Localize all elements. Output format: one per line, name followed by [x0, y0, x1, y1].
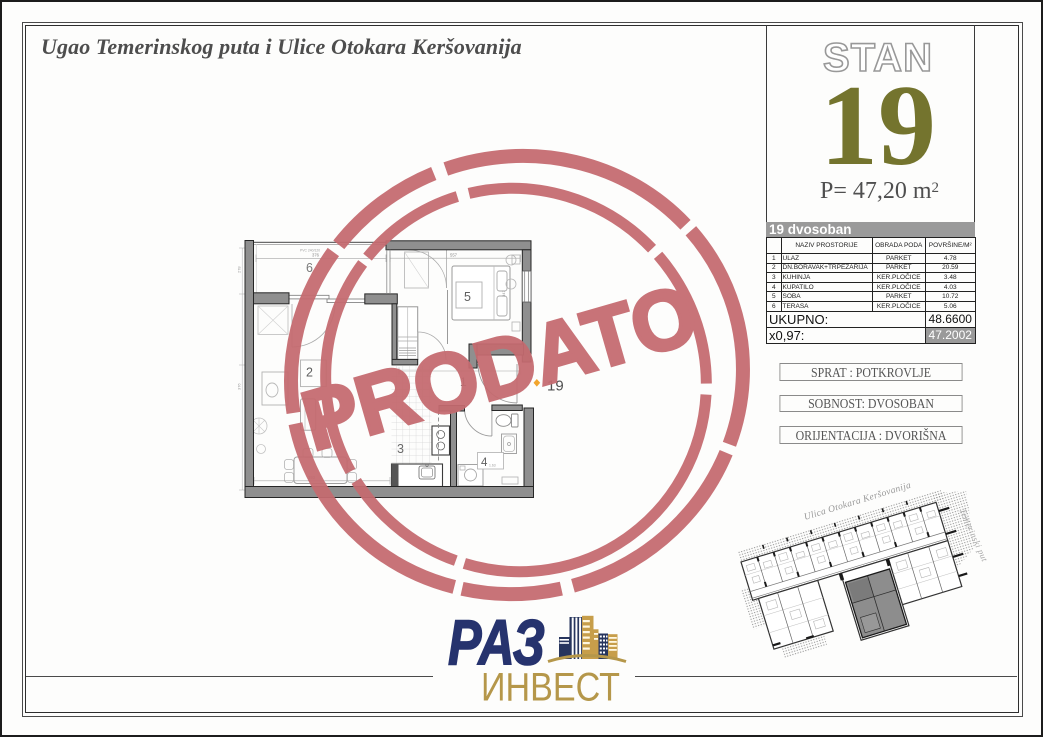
svg-text:278: 278: [237, 266, 242, 273]
svg-text:ИНВЕСТ: ИНВЕСТ: [481, 666, 620, 710]
svg-text:376: 376: [237, 383, 242, 390]
svg-text:4: 4: [481, 457, 488, 469]
svg-text:557: 557: [450, 253, 458, 258]
svg-text:347: 347: [501, 290, 506, 297]
svg-text:PVC 240/120: PVC 240/120: [300, 249, 320, 253]
svg-text:5: 5: [464, 290, 471, 304]
svg-text:1.63: 1.63: [489, 464, 496, 468]
svg-text:376: 376: [312, 253, 320, 258]
